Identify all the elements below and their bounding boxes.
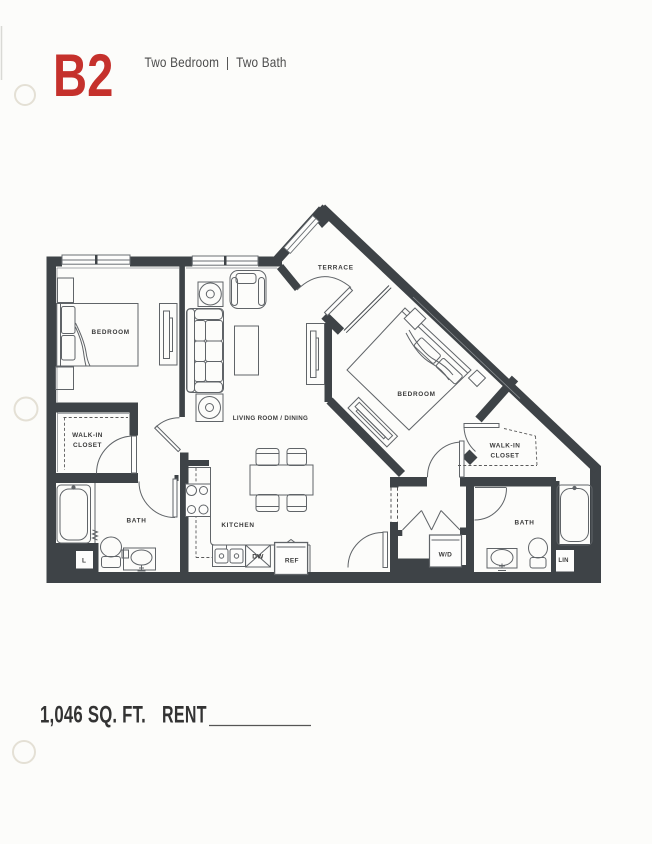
- svg-text:RENT: RENT: [162, 701, 207, 728]
- svg-text:BEDROOM: BEDROOM: [92, 329, 130, 336]
- svg-text:BATH: BATH: [126, 518, 146, 525]
- svg-text:W/D: W/D: [439, 552, 453, 559]
- svg-text:Two Bedroom | Two Bath: Two Bedroom | Two Bath: [145, 54, 287, 70]
- svg-text:TERRACE: TERRACE: [318, 265, 354, 272]
- svg-text:DW: DW: [252, 554, 264, 561]
- svg-text:L: L: [82, 558, 86, 565]
- svg-text:KITCHEN: KITCHEN: [221, 522, 254, 529]
- svg-text:REF: REF: [285, 558, 299, 565]
- svg-text:WALK-IN: WALK-IN: [72, 432, 103, 439]
- svg-text:CLOSET: CLOSET: [73, 442, 102, 449]
- svg-text:LIN: LIN: [558, 558, 568, 564]
- svg-text:LIVING ROOM / DINING: LIVING ROOM / DINING: [233, 415, 308, 422]
- svg-text:BATH: BATH: [514, 520, 534, 527]
- svg-text:1,046 SQ. FT.: 1,046 SQ. FT.: [40, 702, 146, 729]
- svg-text:B2: B2: [53, 42, 113, 109]
- svg-text:WALK-IN: WALK-IN: [490, 443, 521, 450]
- svg-text:BEDROOM: BEDROOM: [397, 391, 435, 398]
- svg-text:CLOSET: CLOSET: [491, 453, 520, 460]
